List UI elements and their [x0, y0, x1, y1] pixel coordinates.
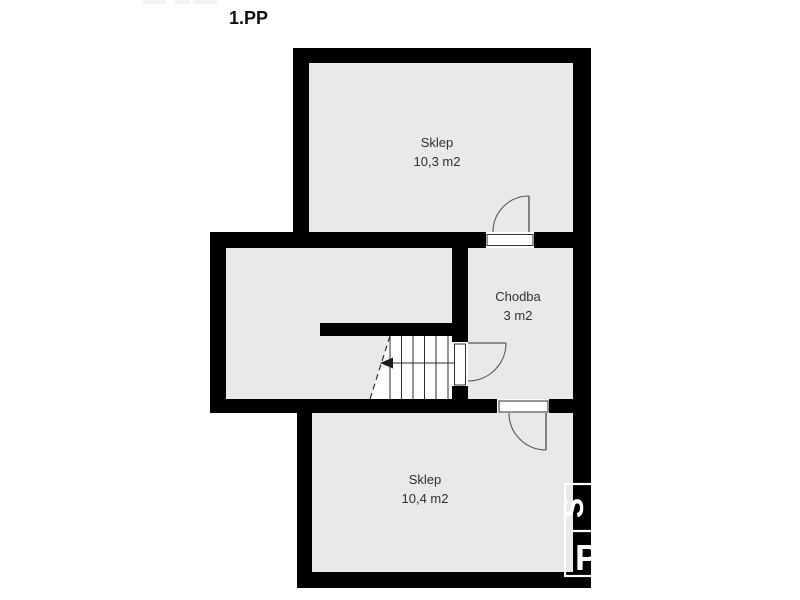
wall-left-lower	[297, 399, 312, 588]
cropped-top-watermark-remnant	[143, 0, 217, 4]
wall-stub-interior	[320, 323, 455, 336]
label-sklep-top-area: 10,3 m2	[414, 154, 461, 169]
door-middle-frame	[455, 344, 466, 385]
floor-plan: 1.PP	[0, 0, 800, 600]
label-sklep-top-name: Sklep	[421, 135, 454, 150]
wall-mid-upper-left	[210, 232, 486, 248]
wall-left-middle	[210, 232, 226, 413]
wall-bottom	[297, 572, 591, 588]
label-sklep-bottom-name: Sklep	[409, 472, 442, 487]
floorplan-page: 1.PP	[0, 0, 800, 600]
wall-mid-upper-right	[534, 232, 579, 248]
wall-left-upper	[293, 48, 309, 232]
wall-mid-lower-right	[549, 399, 579, 413]
room-chodba-floor	[468, 248, 573, 399]
floor-title: 1.PP	[229, 8, 268, 28]
wall-top	[293, 48, 591, 63]
watermark-letter-bottom: P	[575, 537, 599, 578]
label-sklep-bottom-area: 10,4 m2	[402, 491, 449, 506]
wall-mid-lower-left	[210, 399, 497, 413]
wall-chodba-left-upper	[452, 232, 468, 342]
door-top-frame	[487, 235, 533, 246]
label-chodba-name: Chodba	[495, 289, 541, 304]
label-chodba-area: 3 m2	[504, 308, 533, 323]
door-bottom-frame	[499, 401, 548, 412]
